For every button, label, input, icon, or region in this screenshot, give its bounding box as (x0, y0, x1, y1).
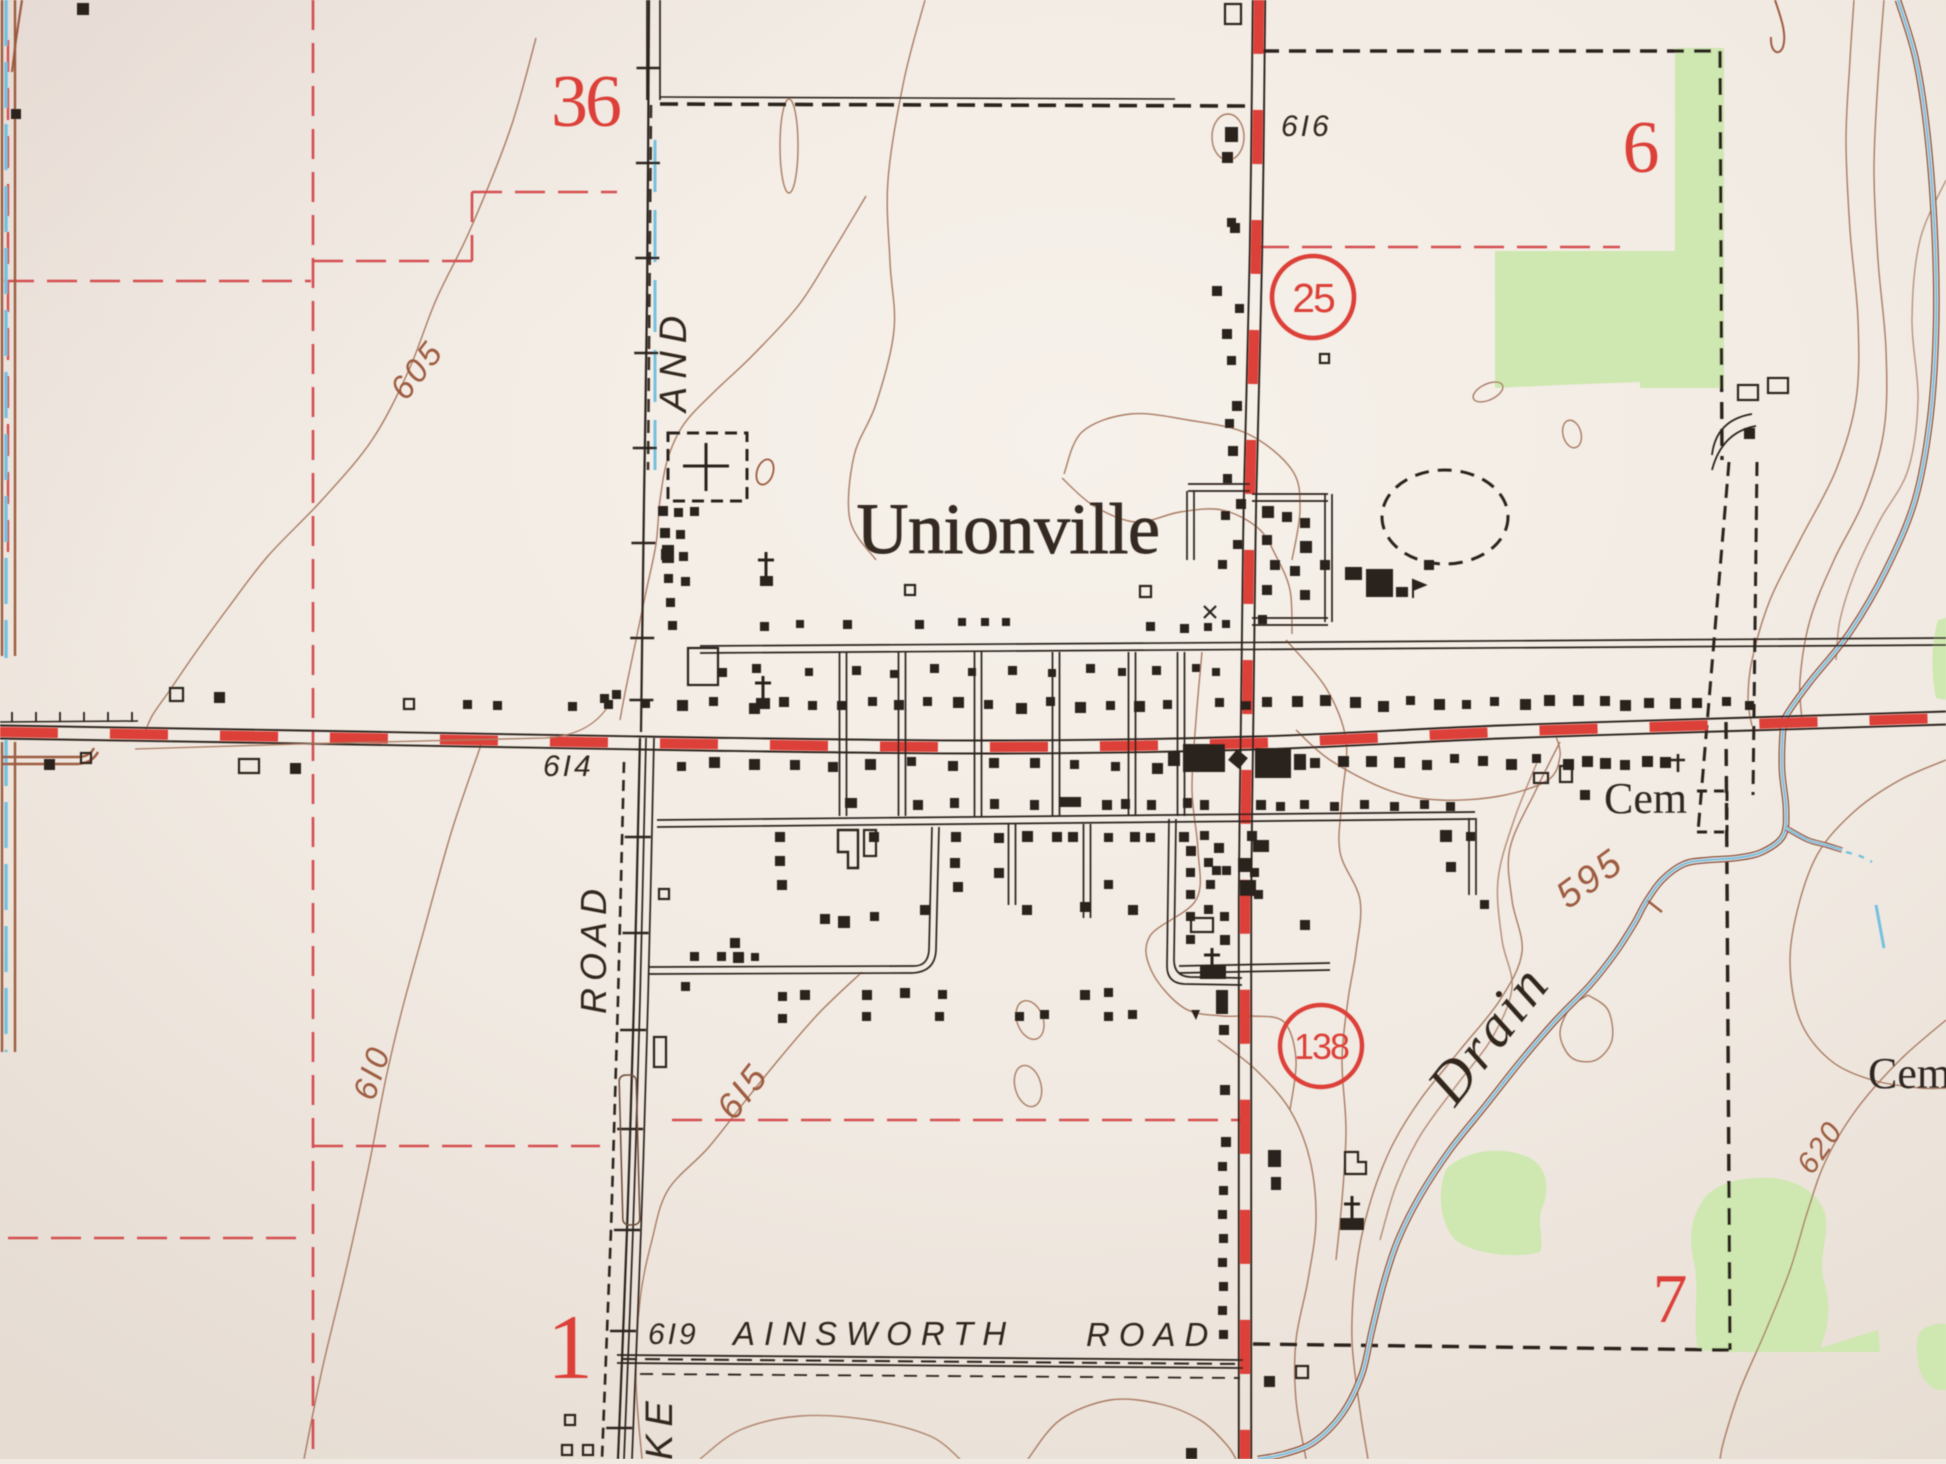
svg-text:138: 138 (1294, 1026, 1349, 1067)
svg-text:6I6: 6I6 (1281, 110, 1332, 143)
svg-text:7: 7 (1653, 1261, 1688, 1338)
svg-text:AND: AND (653, 308, 695, 414)
svg-text:1: 1 (547, 1296, 593, 1398)
svg-text:6I9: 6I9 (648, 1318, 699, 1351)
svg-text:ROAD: ROAD (573, 882, 614, 1014)
svg-text:6: 6 (1623, 107, 1660, 189)
svg-text:6I4: 6I4 (543, 750, 594, 783)
svg-text:Cem: Cem (1868, 1049, 1946, 1098)
svg-text:Cem: Cem (1604, 774, 1687, 823)
svg-text:KE: KE (639, 1393, 681, 1459)
svg-text:AINSWORTH: AINSWORTH (731, 1315, 1015, 1352)
svg-text:25: 25 (1292, 275, 1335, 321)
svg-text:ROAD: ROAD (1086, 1316, 1217, 1353)
svg-text:Unionville: Unionville (857, 489, 1160, 569)
svg-text:36: 36 (551, 61, 620, 143)
